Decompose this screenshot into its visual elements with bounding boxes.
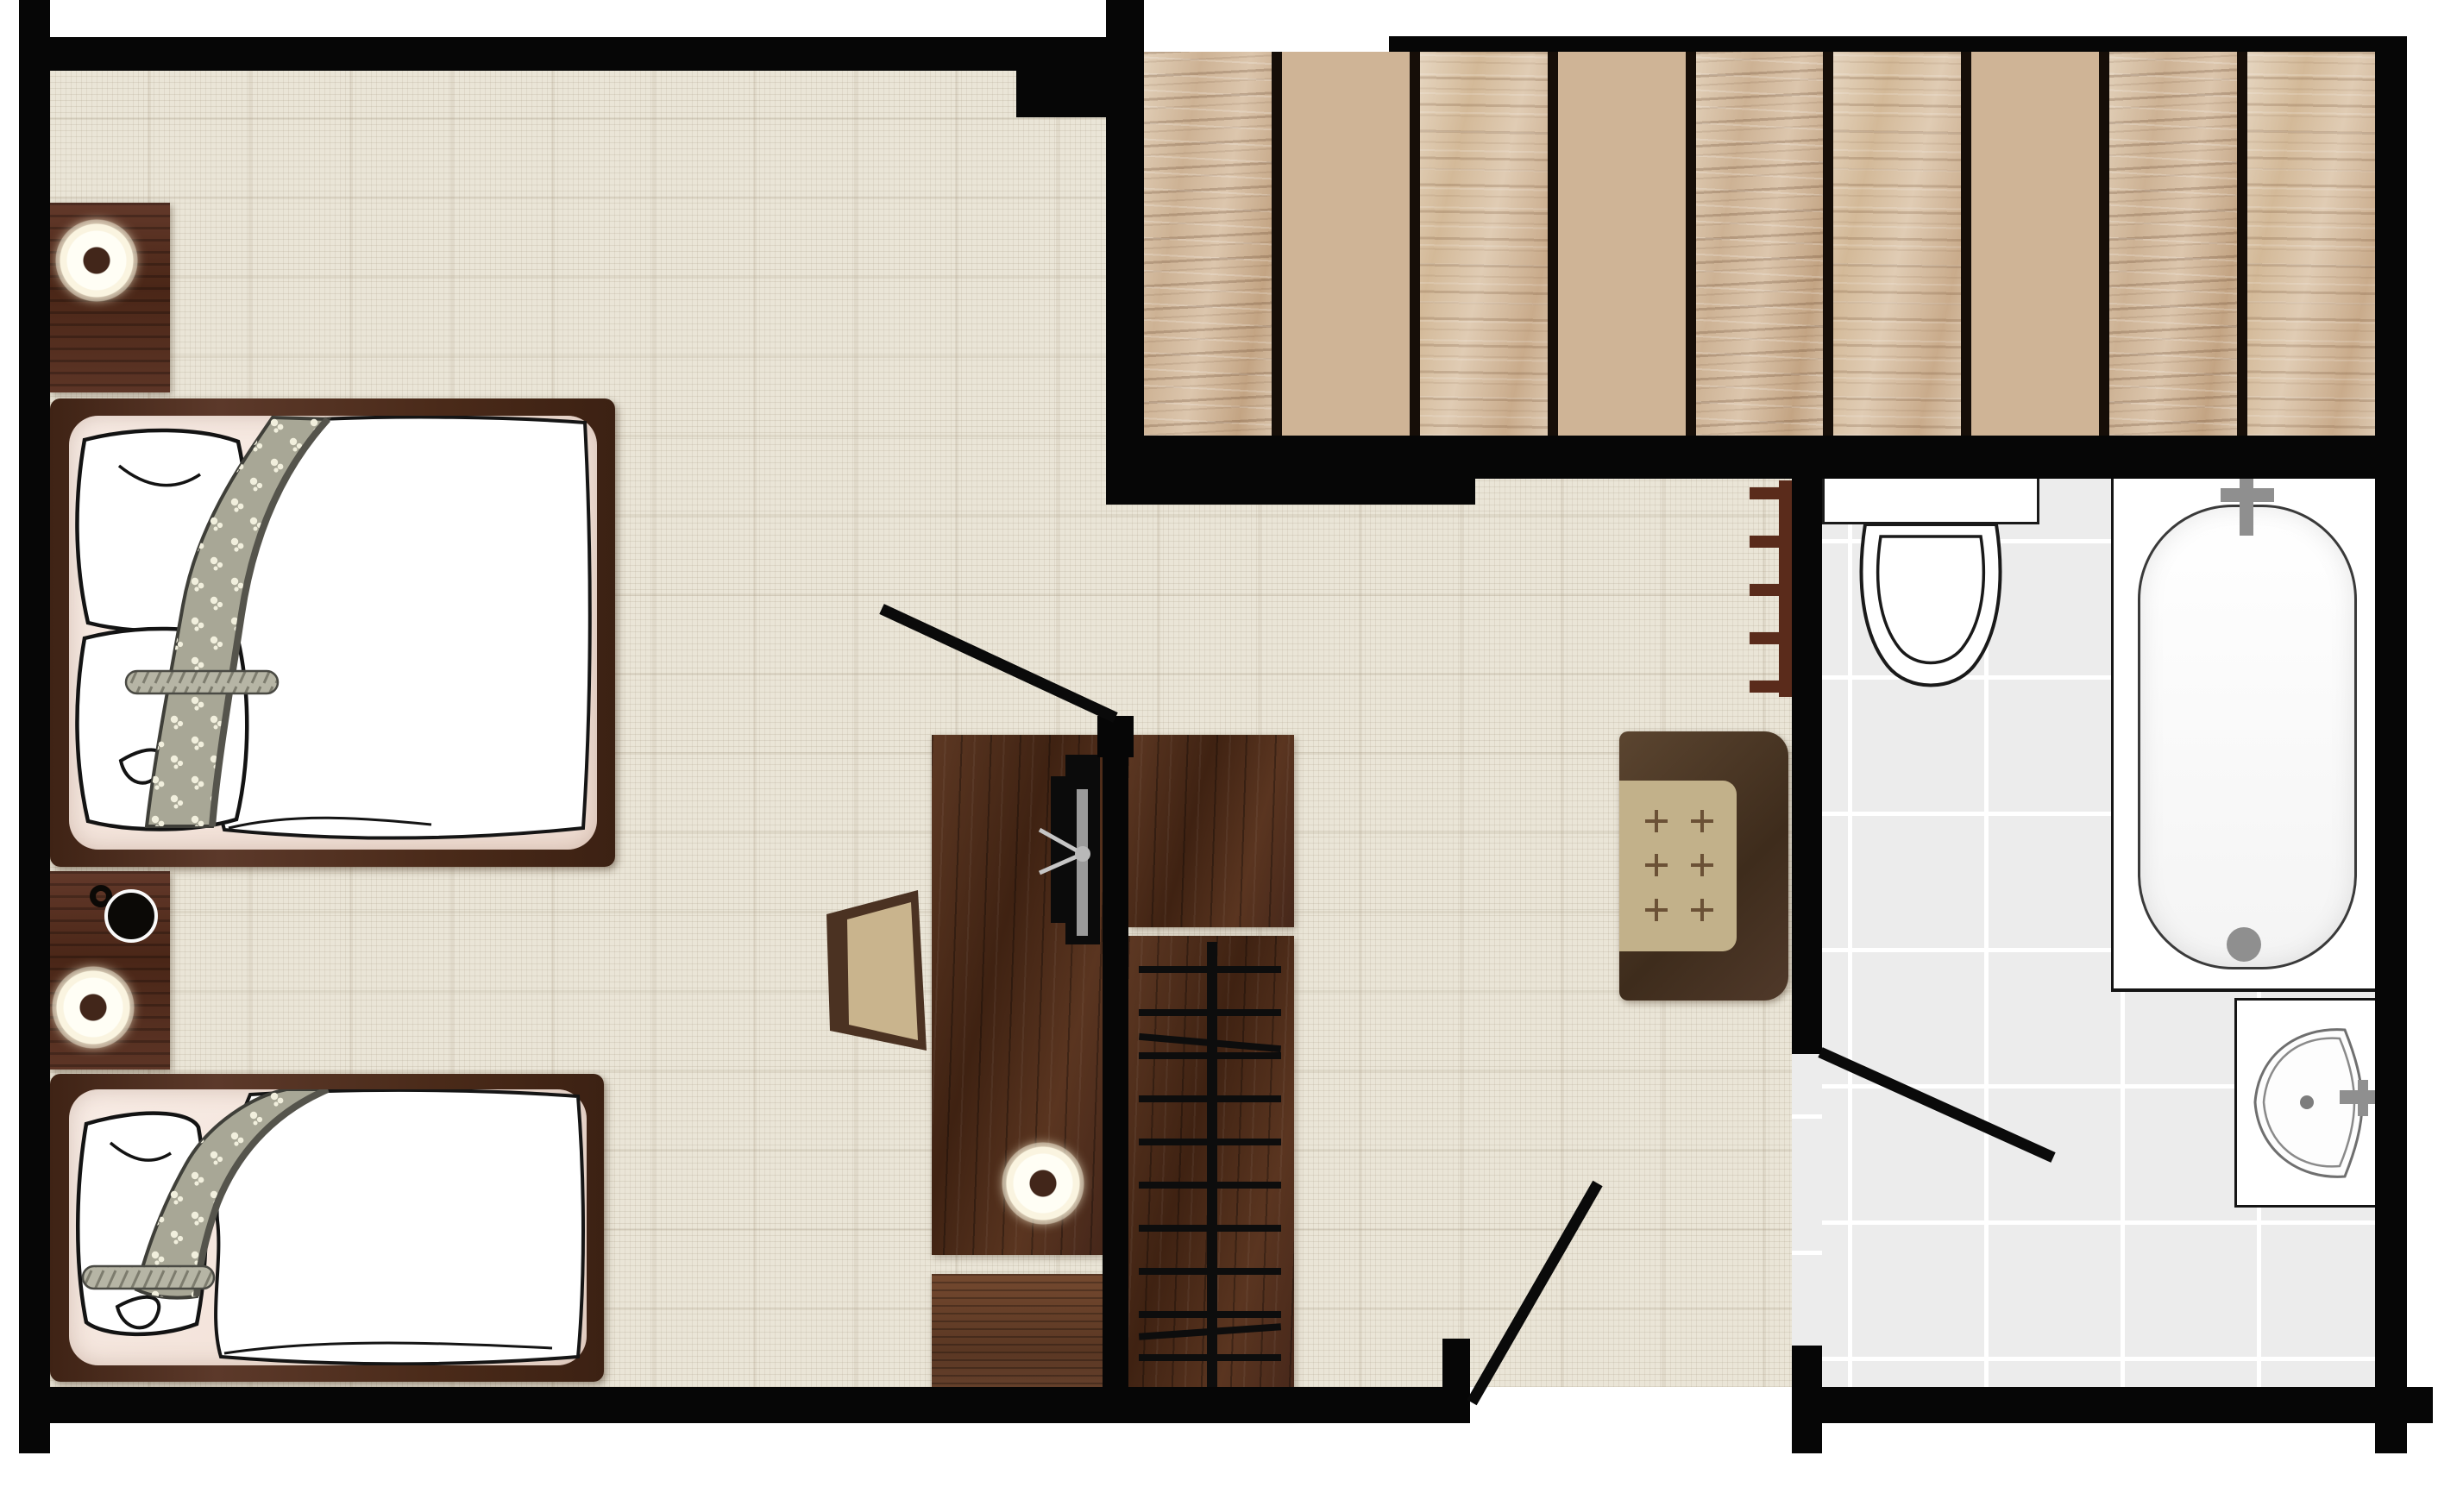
lamp-icon (55, 219, 138, 302)
wall-right (2375, 36, 2407, 1453)
coffee-cup-icon (104, 889, 158, 943)
cushion-tuft-icon (1645, 899, 1668, 921)
wall-partition-stub (1097, 716, 1134, 757)
toilet-bowl (1851, 523, 2010, 723)
bathtub-faucet-icon (2221, 488, 2274, 502)
wall-deck-top-rail (1389, 36, 2407, 52)
toilet-tank (1822, 476, 2039, 524)
deck-plank (1420, 52, 1548, 436)
cushion-tuft-icon (1691, 899, 1713, 921)
cushion-tuft-icon (1645, 810, 1668, 832)
wall-bottom-nub (1442, 1339, 1470, 1387)
wall-bottom-left (19, 1387, 1470, 1423)
washbasin (2245, 1025, 2374, 1183)
wall-partition-line (1103, 755, 1128, 1415)
cushion-tuft-icon (1645, 854, 1668, 876)
deck-plank (1696, 52, 1824, 436)
floor-plan (0, 0, 2438, 1512)
deck-plank (1833, 52, 1961, 436)
wardrobe-top (1128, 735, 1294, 927)
wall-top (19, 37, 1144, 71)
deck-plank (2109, 52, 2237, 436)
desk-chair (821, 888, 933, 1057)
deck-plank (1558, 52, 1686, 436)
wall-deck-bottom-step (1106, 479, 1475, 505)
armchair-cushion (1619, 781, 1737, 951)
bathroom-door-threshold (1792, 1054, 1822, 1387)
deck-floor (1144, 52, 2375, 436)
single-bed-bedding (69, 1089, 587, 1365)
wall-left (19, 0, 50, 1453)
lamp-icon (52, 966, 135, 1049)
lamp-icon (1002, 1142, 1084, 1225)
wardrobe-rod (1207, 942, 1217, 1406)
wall-deck-left (1106, 0, 1144, 479)
deck-plank (1144, 52, 1272, 436)
wall-bathroom-left (1792, 436, 1822, 1054)
double-bed-bedding (69, 416, 597, 850)
wall-entry-stub (1792, 1346, 1822, 1453)
cushion-tuft-icon (1691, 854, 1713, 876)
bathtub (2138, 505, 2357, 969)
bathtub-drain-icon (2227, 927, 2261, 962)
tv-mount (1051, 776, 1065, 923)
deck-plank (2247, 52, 2375, 436)
washbasin-faucet-icon (2358, 1080, 2368, 1116)
wall-bottom-right (1792, 1387, 2433, 1423)
tv-screen (1077, 789, 1088, 936)
cushion-tuft-icon (1691, 810, 1713, 832)
wall-deck-bottom (1106, 436, 2407, 479)
deck-plank (1282, 52, 1410, 436)
ladder-rail (1779, 480, 1792, 697)
deck-plank (1971, 52, 2099, 436)
